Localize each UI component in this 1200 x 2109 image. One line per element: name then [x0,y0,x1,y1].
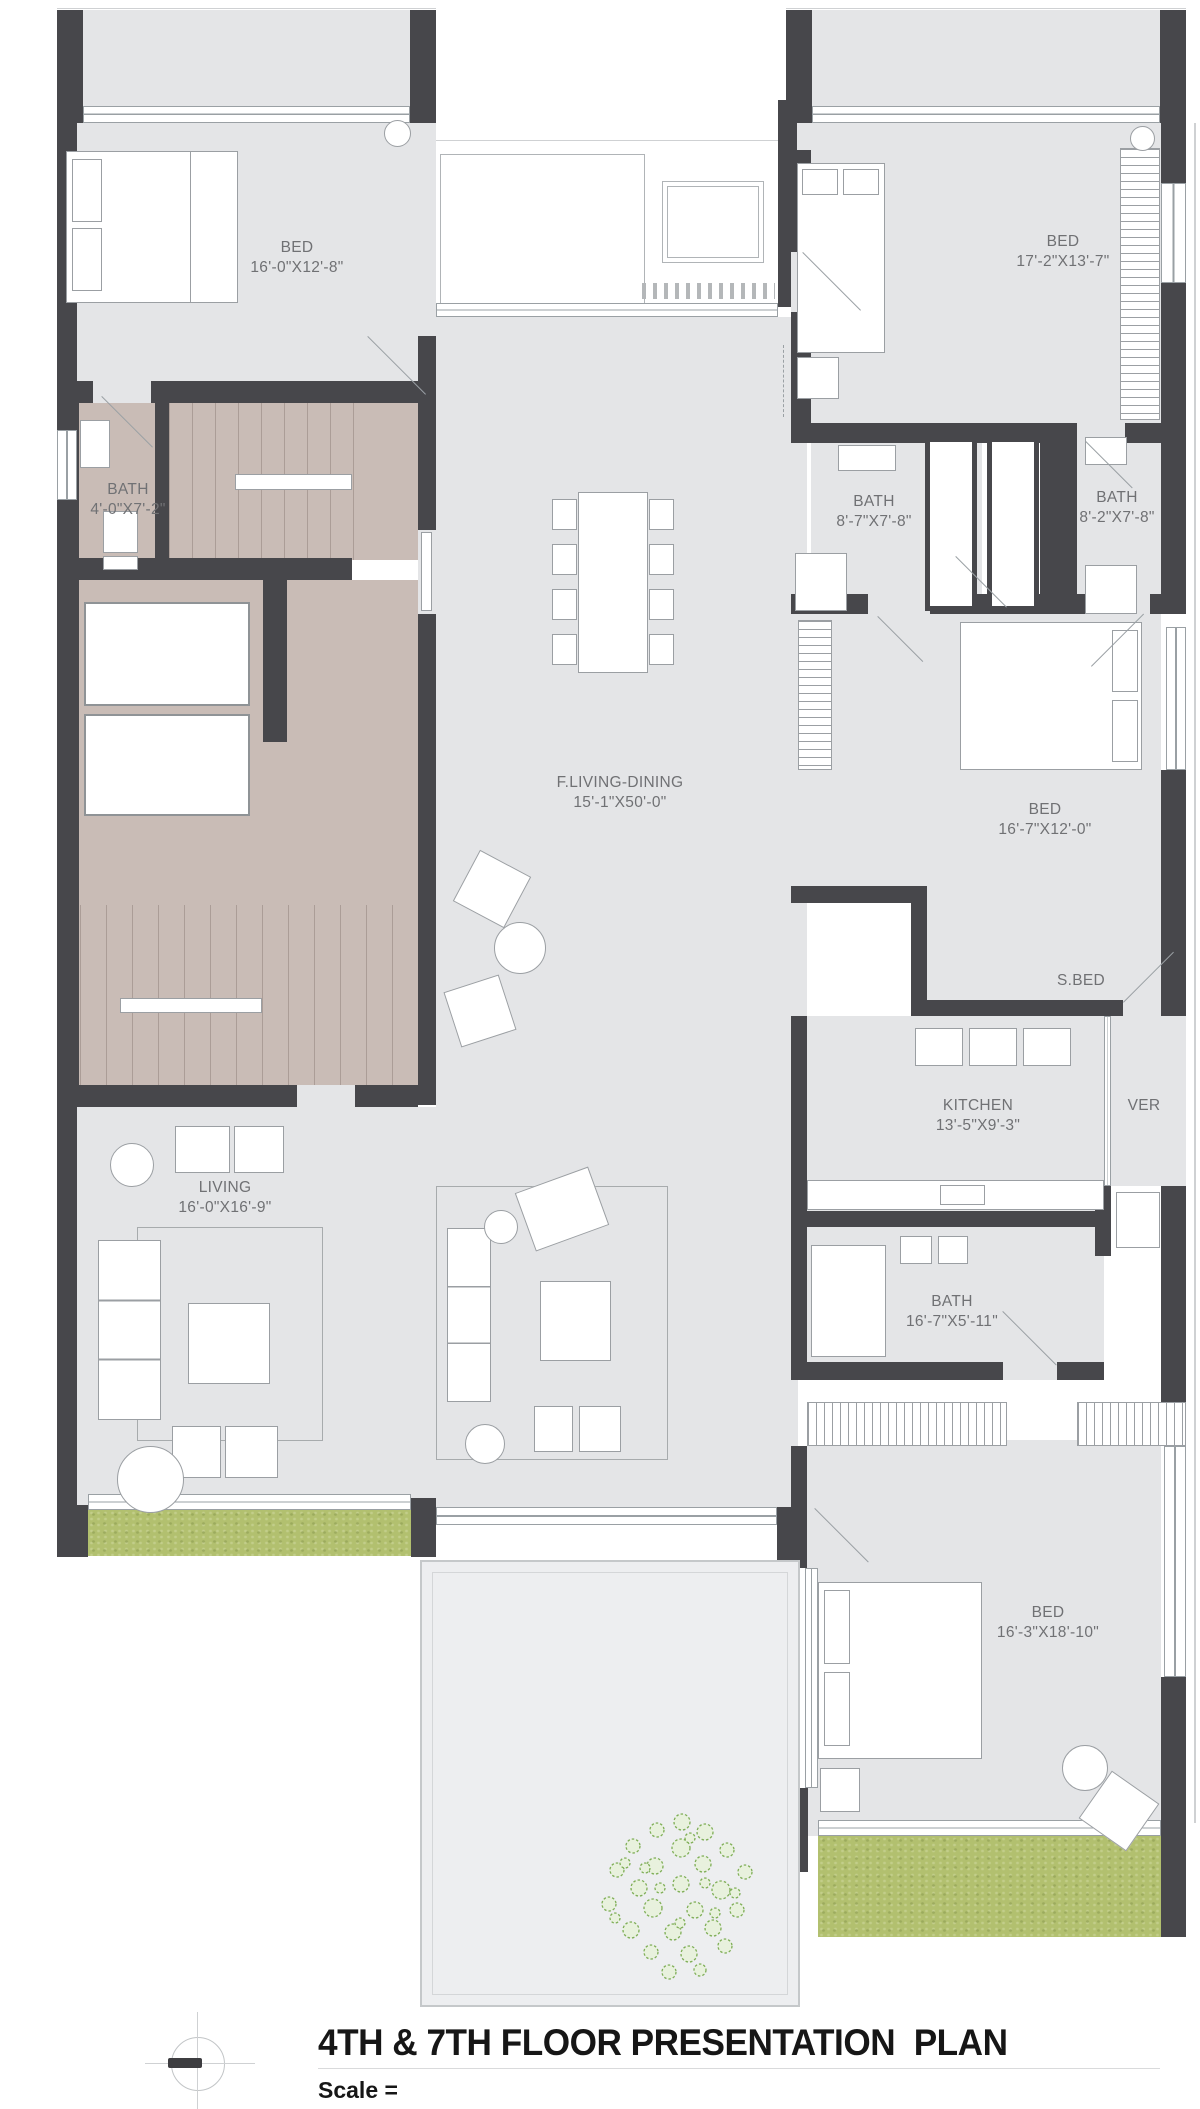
kitchen-counter-unit [969,1028,1017,1066]
sink-fixture [900,1236,932,1264]
wall [57,1085,418,1107]
wall [1160,10,1186,123]
stool-round [1130,126,1155,151]
wall [791,1362,1104,1380]
shower-cabin [987,437,1039,611]
dining-chair [552,589,577,620]
room-label-bath-4: BATH16'-7"X5'-11" [906,1292,998,1332]
wall [411,1498,436,1557]
side-table-round [484,1210,518,1244]
room-label-bath-2: BATH8'-7"X7'-8" [836,492,911,532]
wall [791,1211,1104,1227]
wall [57,10,83,123]
nightstand [820,1768,860,1812]
bed-pillow [824,1590,850,1664]
deck-outline [440,154,645,308]
room-label-sbed: S.BED [1057,971,1105,991]
bed-pillow [802,169,838,195]
parapet-line-right [786,8,1186,9]
door-leaf [421,532,432,611]
ottoman [534,1406,573,1452]
window-band-right-1 [1161,183,1186,283]
deck-planter-inner [667,186,759,258]
wall [410,10,436,123]
title-rule [318,2068,1160,2069]
window-band-center-south [436,1507,777,1525]
window-band-bath1 [57,430,77,500]
bed-pillow [72,159,102,222]
wall [927,1000,1123,1016]
sofa [447,1228,491,1402]
stair-handrail-lower [120,998,262,1013]
bed-pillow [843,169,879,195]
window-band-left-balcony [83,106,410,123]
dining-chair [552,634,577,665]
stair-handrail-upper [235,474,352,490]
sink-fixture [838,445,896,471]
lift-shaft-1 [84,602,250,706]
room-label-veranda: VER [1128,1096,1161,1116]
stool-round [384,120,411,147]
sofa [98,1240,161,1420]
kitchen-counter-unit [1023,1028,1071,1066]
parapet-line-left [57,8,436,9]
window-band-deck [436,303,778,317]
wc-fixture [795,553,847,611]
deck-top-line [436,140,778,141]
washer-unit [1116,1192,1160,1248]
wall [791,1227,807,1362]
dining-chair [649,634,674,665]
dining-table [578,492,648,673]
wardrobe [1120,148,1160,420]
window-band-right-3 [1164,1446,1186,1677]
ottoman [579,1406,621,1452]
wall [263,580,287,742]
room-label-bed-top-left: BED16'-0"X12'-8" [250,238,343,278]
plan-title: 4TH & 7TH FLOOR PRESENTATION PLAN [318,2022,1007,2064]
wc-fixture [1085,565,1137,614]
grass-strip-left [88,1510,411,1556]
nightstand [797,357,839,399]
wall [791,886,927,903]
kitchen-sink [940,1185,985,1205]
sink-fixture [938,1236,968,1264]
wall [1161,1186,1186,1256]
dining-chair [552,544,577,575]
wall [57,1107,77,1507]
cabinet [234,1126,284,1173]
grass-strip-right [818,1836,1161,1937]
dresser-cabinet [1077,1402,1186,1446]
tree-symbol [595,1808,770,1983]
room-label-living: LIVING16'-0"X16'-9" [178,1178,271,1218]
cabinet [175,1126,230,1173]
lift-shaft-2 [84,714,250,816]
balcony-rail-right [1194,123,1196,1823]
kitchen-counter-unit [915,1028,963,1066]
window-band-right-balcony [812,106,1160,123]
veranda-glazing [1104,1016,1111,1186]
room-label-bed-bottom: BED16'-3"X18'-10" [997,1603,1099,1643]
dresser-cabinet [807,1402,1007,1446]
north-scale-symbol [140,2010,270,2109]
wall [1161,770,1186,1016]
coffee-table-round [494,922,546,974]
wall [57,580,79,1105]
sink-fixture [80,420,110,468]
room-label-bath-3: BATH8'-2"X7'-8" [1079,488,1154,528]
fan-symbol [110,1143,154,1187]
wall [1040,437,1077,611]
door-opening [1003,1362,1057,1380]
opening-dashed-line [783,345,784,417]
wall [57,1505,88,1557]
wall [791,1016,807,1211]
room-label-kitchen: KITCHEN13'-5"X9'-3" [936,1096,1020,1136]
tub-fixture [811,1245,886,1357]
room-label-family-living-dining: F.LIVING-DINING15'-1"X50'-0" [557,773,684,813]
stair-treads-lower [80,905,405,1085]
bed-pillow [1112,700,1138,762]
room-label-bed-mid-right: BED16'-7"X12'-0" [998,800,1091,840]
symbol-scale-bar [168,2058,202,2068]
side-table-round [465,1424,505,1464]
dining-chair [552,499,577,530]
bed-blanket-line [190,151,191,303]
dining-chair [649,589,674,620]
dining-chair [649,544,674,575]
shower-cabin [925,437,977,611]
window-band-right-2 [1166,627,1186,770]
stair-landing-upper [354,403,418,560]
bed-pillow [824,1672,850,1746]
deck-board-ticks [642,283,775,299]
door-opening [297,1085,355,1107]
floor-plan-canvas: BED16'-0"X12'-8" BED17'-2"X13'-7" BATH4'… [0,0,1200,2109]
room-label-bed-top-right: BED17'-2"X13'-7" [1016,232,1109,272]
wardrobe [798,620,832,770]
coffee-table [188,1303,270,1384]
window-band-courtyard-side [805,1568,818,1788]
wc-fixture [103,556,138,570]
dining-chair [649,499,674,530]
wall [1161,1677,1186,1937]
side-table-round [117,1446,184,1513]
coffee-table [540,1281,611,1361]
wall [57,558,352,580]
ottoman [225,1426,278,1478]
bed-pillow [72,228,102,291]
scale-label: Scale = [318,2077,398,2104]
wall [911,886,927,1016]
room-label-bath-1: BATH4'-0"X7'-2" [90,480,165,520]
door-opening [868,594,930,614]
wall [777,1507,798,1568]
wall [418,336,436,1105]
door-opening [93,381,151,403]
